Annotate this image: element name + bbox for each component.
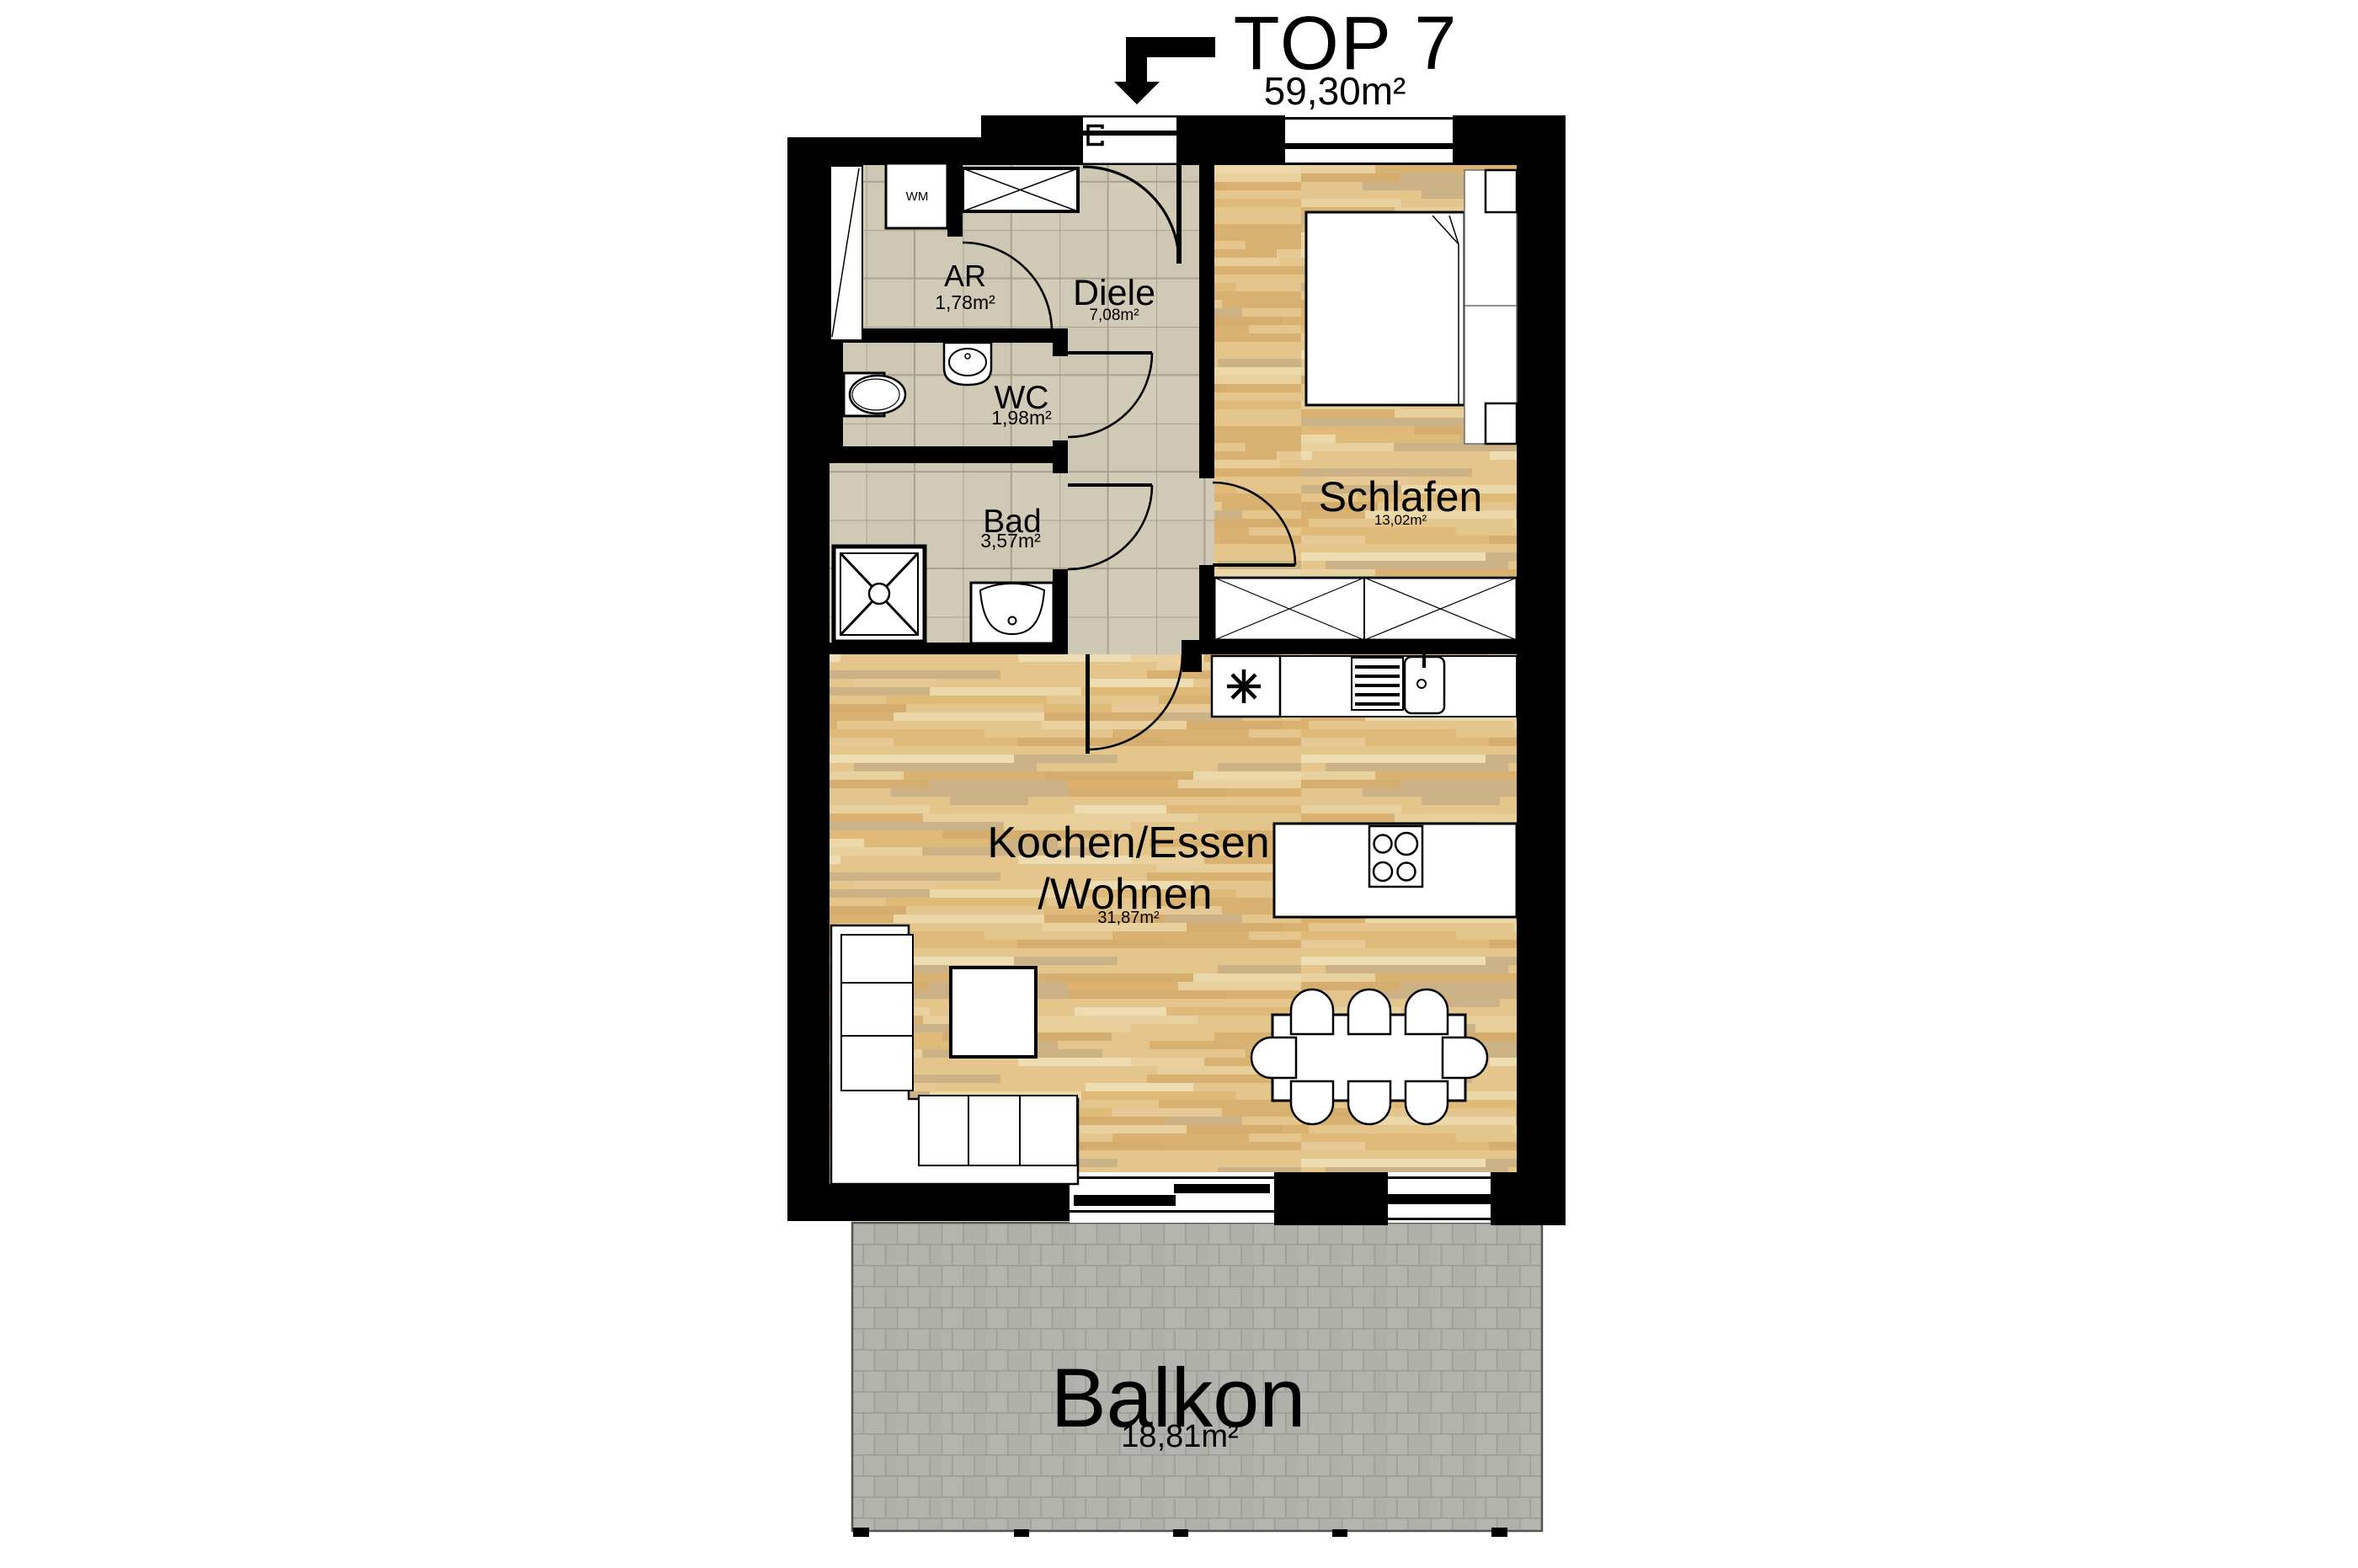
svg-text:Kochen/Essen: Kochen/Essen <box>987 819 1269 867</box>
svg-text:WM: WM <box>906 189 929 204</box>
svg-text:31,87m²: 31,87m² <box>1097 909 1160 927</box>
svg-text:1,98m²: 1,98m² <box>991 407 1052 429</box>
svg-text:AR: AR <box>944 259 986 293</box>
svg-text:18,81m²: 18,81m² <box>1121 1419 1238 1454</box>
svg-text:3,57m²: 3,57m² <box>980 530 1041 552</box>
svg-text:1,78m²: 1,78m² <box>935 291 995 313</box>
svg-text:59,30m²: 59,30m² <box>1264 69 1406 113</box>
svg-text:7,08m²: 7,08m² <box>1089 307 1139 324</box>
svg-text:13,02m²: 13,02m² <box>1374 512 1427 528</box>
